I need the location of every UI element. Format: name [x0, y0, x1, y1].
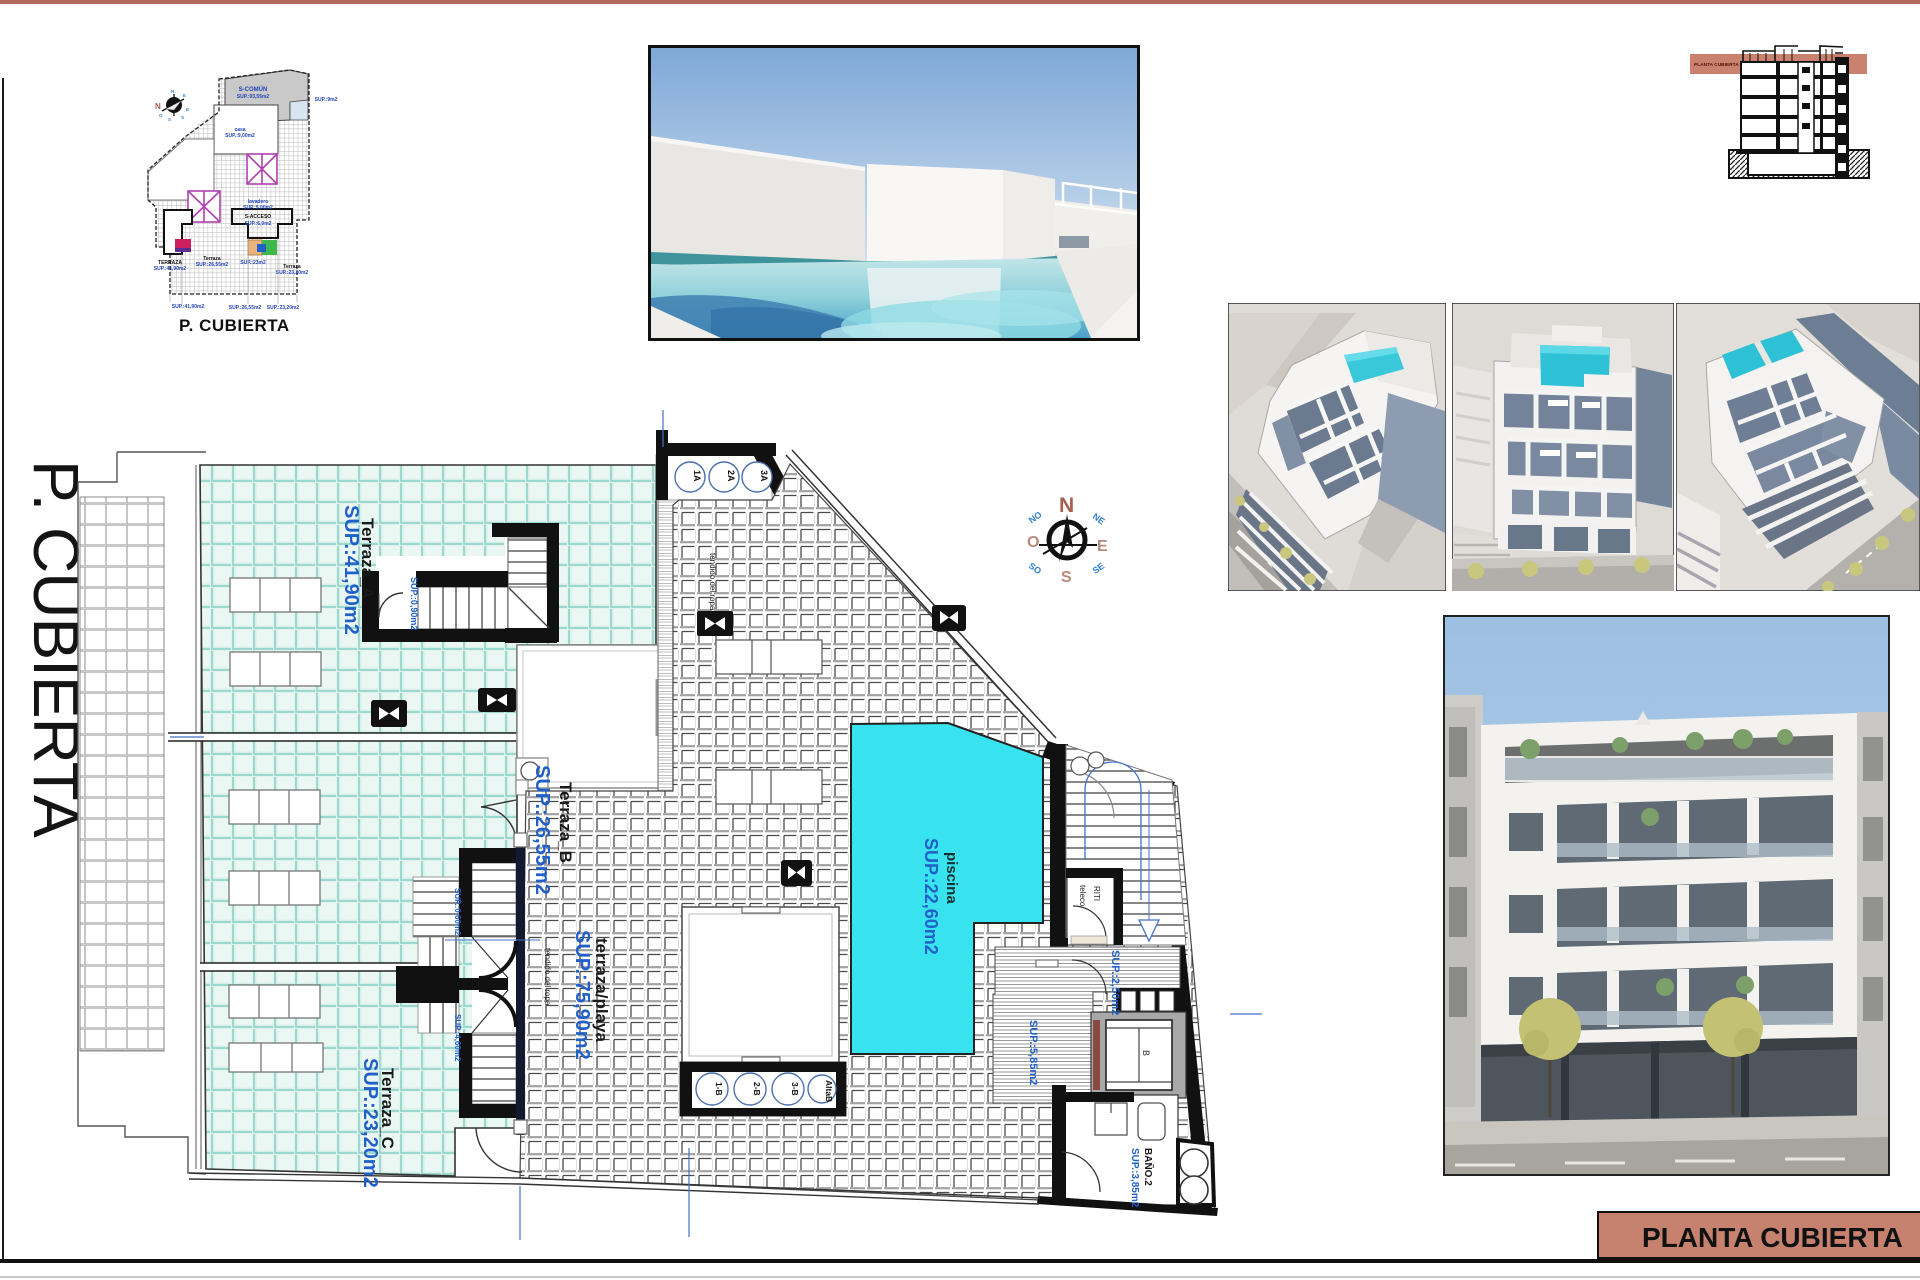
svg-text:terraza/playa: terraza/playa — [592, 938, 611, 1042]
svg-text:SUP.:93,55m2: SUP.:93,55m2 — [237, 94, 270, 100]
svg-text:SUP.:22,60m2: SUP.:22,60m2 — [921, 838, 941, 955]
svg-text:S: S — [168, 117, 171, 122]
svg-text:SUP.:6,0m2: SUP.:6,0m2 — [245, 221, 272, 227]
svg-text:SUP.:5,85m2: SUP.:5,85m2 — [1027, 1020, 1039, 1085]
svg-text:SUP.:23m2: SUP.:23m2 — [240, 260, 266, 266]
svg-text:SUP.:4,60m2: SUP.:4,60m2 — [453, 1014, 462, 1062]
svg-text:3A: 3A — [759, 470, 769, 482]
svg-text:SUP.:2,50m2: SUP.:2,50m2 — [1109, 950, 1121, 1015]
svg-text:SUP.:9,00m2: SUP.:9,00m2 — [225, 133, 255, 139]
svg-text:SE: SE — [1091, 561, 1107, 576]
svg-text:SUP.:3,85m2: SUP.:3,85m2 — [1129, 1148, 1140, 1208]
svg-text:NE: NE — [1091, 511, 1107, 526]
svg-text:SUP.:23,20m2: SUP.:23,20m2 — [359, 1058, 381, 1188]
svg-text:B: B — [1141, 1050, 1151, 1056]
svg-text:SUP.:5,00m2: SUP.:5,00m2 — [243, 205, 273, 211]
svg-text:SUP.:0,90m2: SUP.:0,90m2 — [409, 577, 419, 630]
svg-text:3-B: 3-B — [790, 1082, 800, 1096]
svg-text:tendido del ropa: tendido del ropa — [708, 553, 717, 611]
svg-text:S-ACCESO: S-ACCESO — [245, 214, 272, 220]
svg-text:E: E — [1097, 538, 1108, 555]
svg-text:O: O — [1027, 534, 1039, 551]
svg-text:2-B: 2-B — [752, 1082, 762, 1096]
svg-text:SUP.:75,90m2: SUP.:75,90m2 — [571, 930, 593, 1060]
svg-text:SUP.:0,60m2: SUP.:0,60m2 — [453, 888, 462, 936]
svg-text:S: S — [1061, 569, 1072, 586]
svg-text:SO: SO — [1027, 561, 1043, 577]
svg-text:BAÑO.2: BAÑO.2 — [1142, 1148, 1155, 1186]
svg-text:E: E — [186, 107, 189, 112]
svg-text:N: N — [155, 102, 161, 111]
svg-text:S: S — [181, 115, 184, 120]
svg-text:SUP.:41,90m2: SUP.:41,90m2 — [172, 304, 205, 310]
svg-text:O: O — [159, 113, 163, 118]
svg-text:1-B: 1-B — [714, 1082, 724, 1096]
svg-text:SUP.:23,20m2: SUP.:23,20m2 — [267, 305, 300, 311]
svg-text:RITI: RITI — [1092, 886, 1101, 901]
svg-text:SUP.:41,90m2: SUP.:41,90m2 — [154, 266, 187, 272]
svg-text:N: N — [1059, 494, 1074, 517]
svg-text:1A: 1A — [692, 470, 702, 482]
svg-text:NO: NO — [1027, 509, 1044, 525]
svg-text:tendido del ropa: tendido del ropa — [543, 948, 552, 1006]
svg-text:S-COMÚN: S-COMÚN — [239, 86, 268, 93]
svg-text:AltaB: AltaB — [824, 1080, 834, 1102]
svg-text:SUP.:41,90m2: SUP.:41,90m2 — [340, 505, 362, 635]
svg-text:piscina: piscina — [943, 852, 960, 904]
svg-text:E: E — [183, 93, 186, 98]
svg-text:SUP.:9m2: SUP.:9m2 — [315, 97, 338, 103]
svg-text:SUP.:23,20m2: SUP.:23,20m2 — [276, 270, 309, 276]
svg-text:N: N — [171, 89, 174, 94]
svg-text:2A: 2A — [726, 470, 736, 482]
svg-text:SUP.:26,55m2: SUP.:26,55m2 — [196, 262, 229, 268]
svg-text:PLANTA CUBIERTA: PLANTA CUBIERTA — [1694, 62, 1739, 68]
svg-text:Terraza_B: Terraza_B — [556, 782, 575, 863]
svg-text:SUP.:26,55m2: SUP.:26,55m2 — [229, 305, 262, 311]
svg-text:P. CUBIERTA: P. CUBIERTA — [179, 316, 290, 335]
svg-text:teleco: teleco — [1078, 885, 1087, 907]
svg-text:SUP.:26,55m2: SUP.:26,55m2 — [531, 765, 553, 895]
